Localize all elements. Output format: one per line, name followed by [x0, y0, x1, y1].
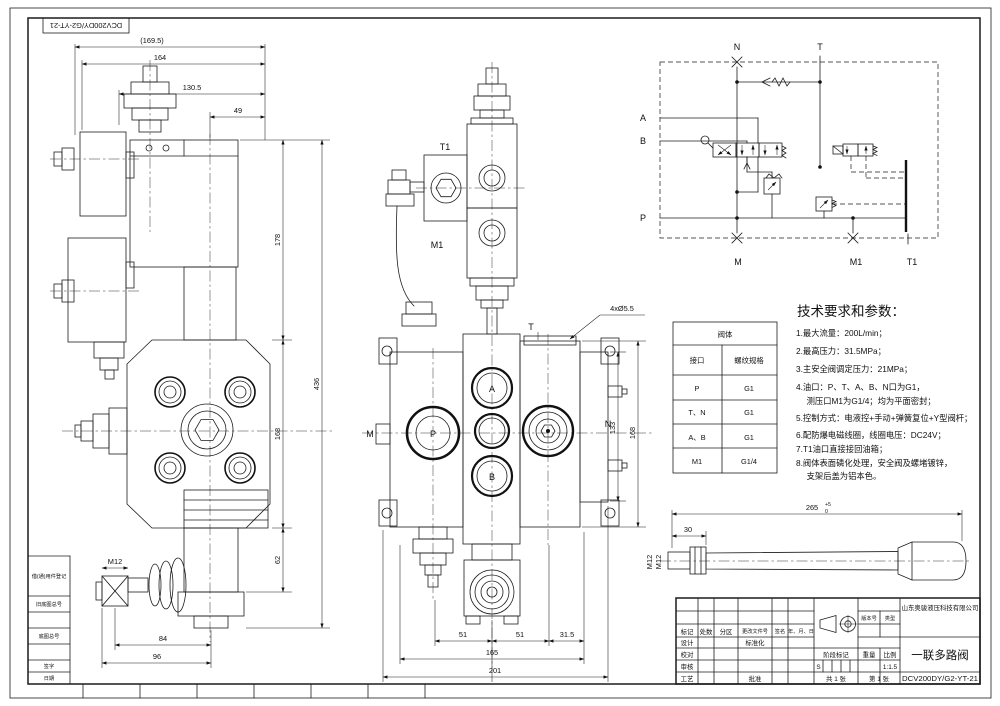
thread-cell: G1 [744, 408, 754, 417]
dim-96: 96 [153, 652, 161, 661]
hydraulic-schematic: N T A B P M M1 T1 [640, 42, 938, 267]
dim-436: 436 [312, 378, 321, 390]
tech-note-line: 2.最高压力：31.5MPa； [796, 346, 886, 356]
tb-label-qty: 处数 [700, 627, 713, 636]
margin-row-date: 日期 [44, 675, 54, 682]
tech-notes: 技术要求和参数： 1.最大流量：200L/min； 2.最高压力：31.5MPa… [796, 303, 972, 481]
dim-31-5: 31.5 [560, 630, 574, 639]
thread-cell: G1/4 [741, 457, 757, 466]
front-label-m1: M1 [431, 240, 444, 250]
tb-label-weight: 重量 [863, 651, 876, 659]
schematic-port-m: M [734, 257, 742, 267]
thread-cell: G1 [744, 384, 754, 393]
title-block: 标记 处数 分区 更改文件号 签名 年、月、日 设计 校对 审核 工艺 标准化 … [676, 598, 980, 684]
margin-row-sign: 签字 [44, 662, 54, 670]
margin-row-old-base: 旧底图总号 [36, 600, 62, 608]
dim-265: 265 [806, 503, 818, 512]
tech-note-line: 支架后盖为铝本色。 [796, 471, 881, 481]
tech-note-line: 6.配防爆电磁线圈，线圈电压：DC24V； [796, 430, 946, 440]
dim-165: 165 [486, 648, 498, 657]
corner-stamp-number: DCV200DY/G2-YT-21 [50, 21, 122, 30]
dim-130-5: 130.5 [183, 83, 202, 92]
front-port-b: B [489, 472, 495, 482]
front-port-a: A [489, 384, 495, 394]
front-port-p: P [430, 429, 436, 439]
schematic-port-a: A [640, 113, 646, 123]
tb-scale-value: 1:1.5 [883, 664, 898, 671]
port-table: 阀体 接口 螺纹规格 P G1 T、N G1 A、B G1 M1 G1/4 [673, 322, 777, 473]
front-note-holes: 4xØ5.5 [610, 304, 634, 313]
dim-133: 133 [608, 422, 617, 434]
front-label-t: T [528, 322, 534, 332]
tech-note-line: 7.T1油口直接接回油箱； [796, 444, 887, 454]
schematic-port-b: B [640, 136, 646, 146]
tb-label-audit: 审核 [681, 662, 694, 671]
drawing-sheet: DCV200DY/G2-YT-21 借(通)用件登记 旧底图总号 底图总号 签字… [0, 0, 1000, 706]
port-table-title: 阀体 [718, 330, 733, 339]
margin-block: 借(通)用件登记 旧底图总号 底图总号 签字 日期 [28, 556, 70, 684]
dim-m12-handle: M12 [654, 555, 663, 569]
front-label-m: M [366, 429, 374, 439]
side-view: (169.5) 164 130.5 49 178 168 62 436 M12 … [50, 36, 334, 668]
port-cell: A、B [688, 433, 705, 442]
tech-note-line: 1.最大流量：200L/min； [796, 328, 887, 338]
tech-note-line: 8.阀体表面磷化处理，安全阀及螺堵镀锌， [796, 458, 952, 468]
dim-51-left: 51 [459, 630, 467, 639]
port-table-col-port: 接口 [690, 356, 705, 365]
dim-168-side: 168 [273, 428, 282, 440]
schematic-port-m1: M1 [850, 257, 863, 267]
tb-label-design: 设计 [681, 638, 694, 647]
tech-notes-title: 技术要求和参数： [797, 303, 905, 319]
tb-stage-s: S [816, 664, 820, 671]
front-note-m12: M12 [645, 555, 654, 569]
schematic-port-p: P [640, 213, 646, 223]
thread-cell: G1 [744, 433, 754, 442]
dim-265-tol-upper: +5 [825, 502, 831, 508]
tb-label-change-doc: 更改文件号 [742, 627, 768, 635]
dim-84: 84 [159, 634, 167, 643]
tech-note-line: 测压口M1为G1/4；均为平面密封； [796, 396, 936, 406]
schematic-port-t: T [817, 42, 823, 52]
tech-note-line: 5.控制方式：电液控+手动+弹簧复位+Y型阀杆； [796, 413, 972, 423]
tb-label-standardization: 标准化 [745, 638, 765, 647]
dim-164: 164 [154, 53, 166, 62]
tb-label-zone: 分区 [720, 627, 733, 636]
first-angle-projection-icon [820, 615, 857, 633]
tb-label-mark: 标记 [681, 627, 694, 636]
dim-49: 49 [234, 106, 242, 115]
tb-sheets-total: 共 1 张 [826, 674, 846, 683]
tb-label-approval: 批准 [749, 674, 762, 683]
dim-m12-side: M12 [108, 557, 122, 566]
handle-view: 265 +5 0 30 M12 [654, 502, 972, 580]
tb-product-name: 一联多路阀 [911, 648, 969, 662]
tb-label-scale: 比例 [884, 650, 897, 659]
port-table-col-thread: 螺纹规格 [734, 356, 764, 365]
port-cell: M1 [692, 457, 702, 466]
dim-169-5: (169.5) [140, 36, 163, 45]
front-label-t1: T1 [440, 142, 451, 152]
tb-label-craft: 工艺 [681, 675, 694, 683]
dim-265-tol-lower: 0 [825, 509, 828, 515]
tb-label-stage-mark: 阶段标记 [823, 650, 849, 659]
tb-sheet-no: 第 1 张 [869, 674, 889, 683]
tech-note-line: 3.主安全阀调定压力：21MPa； [796, 364, 912, 374]
tb-label-date: 年、月、日 [788, 627, 814, 635]
schematic-port-n: N [734, 42, 741, 52]
port-cell: P [695, 384, 700, 393]
tech-note-line: 4.油口：P、T、A、B、N口为G1， [796, 382, 925, 392]
tb-label-type: 类型 [885, 614, 895, 622]
tb-label-proof: 校对 [681, 650, 694, 659]
dim-168-front: 168 [628, 427, 637, 439]
dim-201: 201 [489, 666, 501, 675]
dim-30: 30 [684, 525, 692, 534]
plug-x-m1 [848, 233, 858, 243]
schematic-port-t1: T1 [907, 257, 918, 267]
margin-row-borrow: 借(通)用件登记 [32, 572, 67, 580]
dim-62: 62 [273, 556, 282, 564]
front-view: T1 M1 P A B M N T 4xØ5.5 133 168 M12 [362, 62, 654, 682]
tb-drawing-number: DCV200DY/G2-YT-21 [902, 674, 978, 683]
tb-label-sign: 签名 [775, 627, 785, 635]
margin-row-base: 底图总号 [39, 632, 60, 640]
port-cell: T、N [688, 408, 705, 417]
tb-company: 山东奥骏液压科技有限公司 [902, 603, 979, 612]
tb-label-version: 版本号 [861, 614, 877, 622]
corner-stamp: DCV200DY/G2-YT-21 [43, 18, 129, 33]
dim-51-right: 51 [516, 630, 524, 639]
dim-178: 178 [273, 234, 282, 246]
